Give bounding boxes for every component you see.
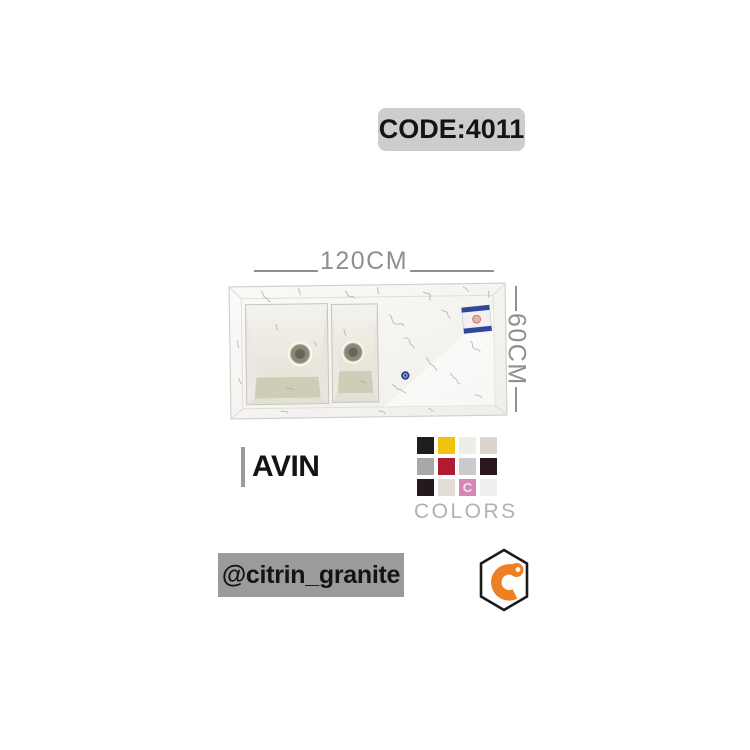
color-swatch-pink: C (459, 479, 476, 496)
color-swatch-white-marble (459, 437, 476, 454)
logo-watermark-glyph: C (459, 479, 476, 496)
dimension-line-left (254, 270, 318, 272)
color-swatch-grid: C (417, 437, 498, 496)
dimension-line-bottom (515, 387, 517, 412)
sink-product-photo (227, 279, 510, 422)
color-swatch-beige (480, 437, 497, 454)
color-swatch-black (417, 437, 434, 454)
product-code-badge: CODE:4011 (378, 108, 525, 151)
color-swatch-crimson (438, 458, 455, 475)
sink-illustration (227, 279, 510, 422)
middle-basin (331, 304, 378, 403)
color-swatch-white (480, 479, 497, 496)
name-accent-bar (241, 447, 245, 487)
product-label-sticker (461, 305, 491, 334)
middle-basin-floor (337, 371, 373, 394)
colors-section-title: COLORS (414, 500, 518, 524)
dimension-line-top (515, 286, 517, 311)
color-swatch-gray (417, 458, 434, 475)
color-swatch-cream (438, 479, 455, 496)
product-name-block: AVIN (241, 446, 319, 488)
left-basin (245, 304, 328, 405)
left-basin-floor (254, 377, 320, 399)
logo-curl-dot (516, 567, 521, 572)
width-dimension: 120CM (247, 246, 501, 274)
brand-logo (477, 547, 531, 613)
color-swatch-light-gray (459, 458, 476, 475)
color-swatch-dark-brown (480, 458, 497, 475)
product-card: CODE:4011 120CM 60CM (0, 0, 750, 750)
width-dimension-label: 120CM (318, 249, 410, 274)
color-swatch-black-marble (417, 479, 434, 496)
hexagon-logo-outline (481, 550, 527, 610)
dimension-line-right (410, 270, 494, 272)
product-name: AVIN (252, 450, 319, 484)
color-swatch-yellow (438, 437, 455, 454)
instagram-handle-badge: @citrin_granite (218, 553, 404, 597)
